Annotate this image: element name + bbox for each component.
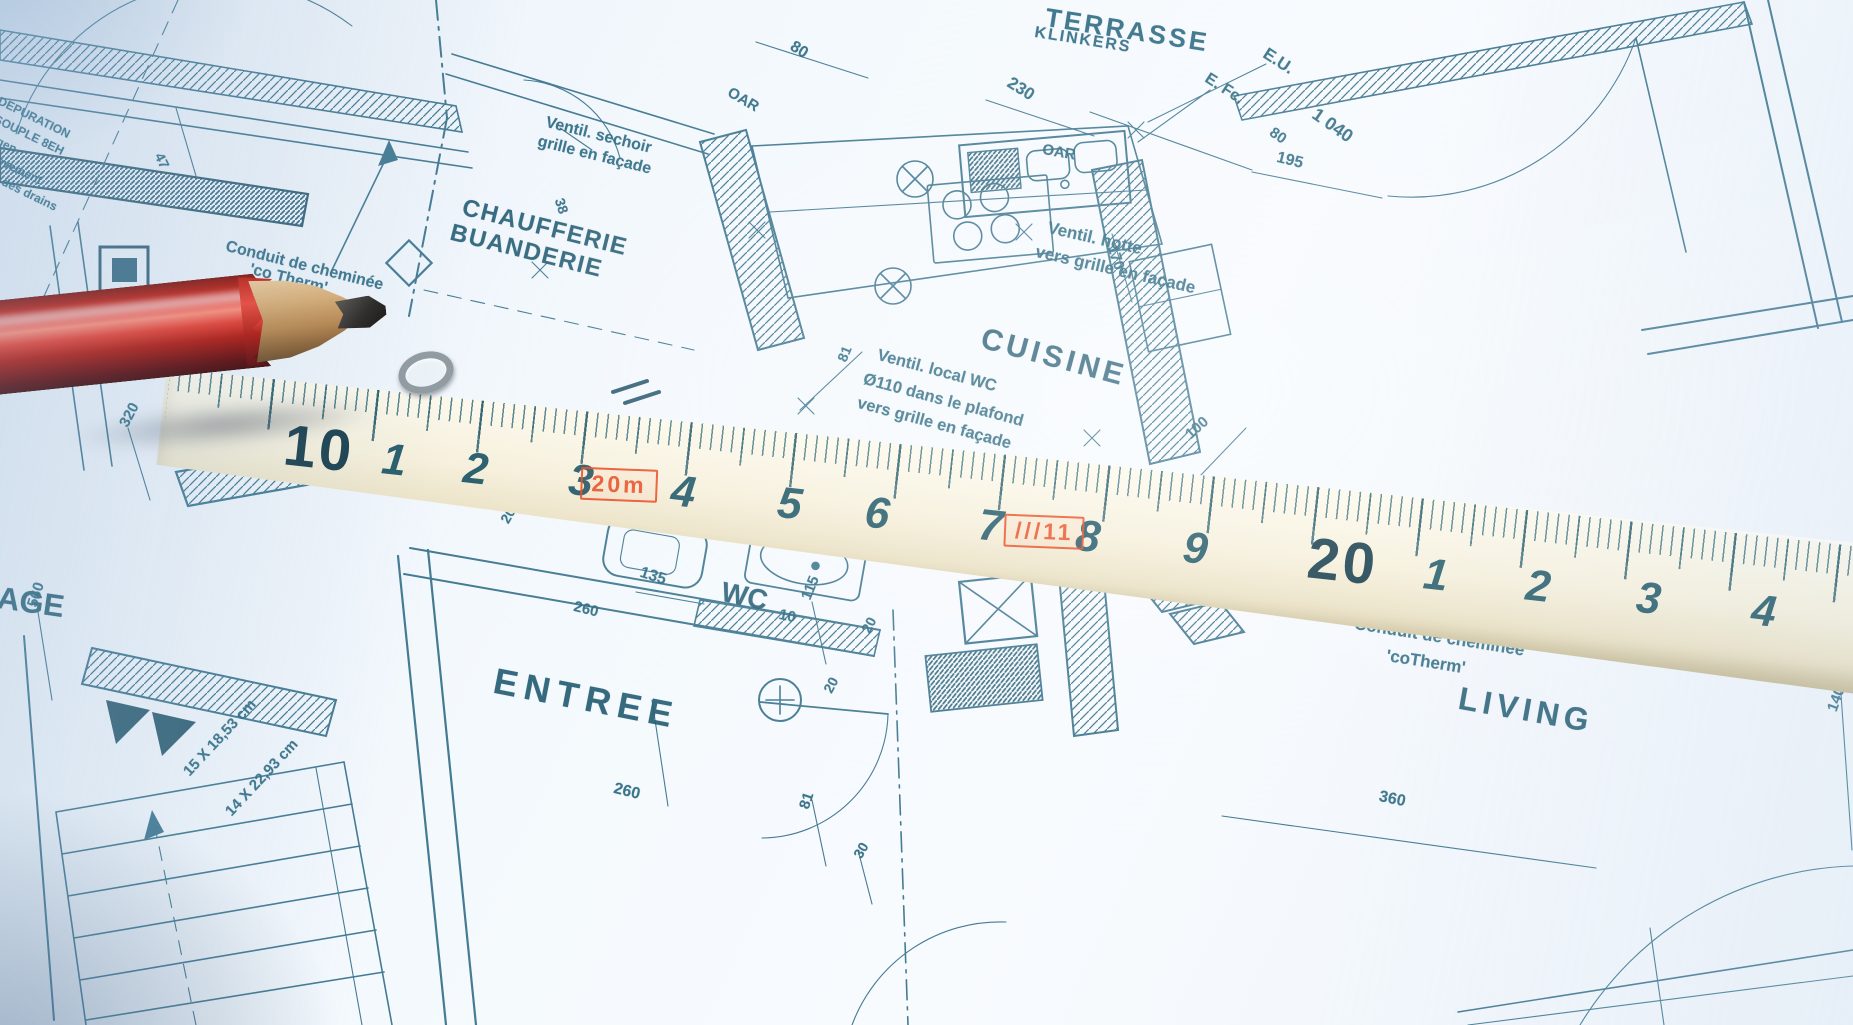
label-dim-260-b: 260 xyxy=(612,780,642,804)
label-dim-20-c: 20 xyxy=(820,674,841,695)
label-oar-2: OAR xyxy=(1041,141,1077,164)
label-efc: E. Fc. xyxy=(1201,70,1247,108)
tape-number-11: 1 xyxy=(1421,549,1451,601)
tape-number-14: 4 xyxy=(1749,585,1779,637)
label-wc: WC xyxy=(718,576,770,617)
label-dim-1040: 1 040 xyxy=(1308,104,1357,147)
blueprint-photo: TERRASSEKLINKERS80OAR230E.U.E. Fc.1 0408… xyxy=(0,0,1853,1025)
label-dim-360: 360 xyxy=(1377,788,1407,811)
label-living: LIVING xyxy=(1456,680,1597,740)
label-dim-30: 30 xyxy=(850,840,872,861)
tape-number-9: 9 xyxy=(1180,523,1210,575)
label-dim-81-b: 81 xyxy=(796,790,817,811)
tape-number-7: 7 xyxy=(976,500,1006,552)
label-conduit-right-2: 'coTherm' xyxy=(1385,646,1467,678)
tape-number-12: 2 xyxy=(1523,561,1553,613)
label-dim-80-top: 80 xyxy=(786,38,811,63)
label-dim-81-mid: 81 xyxy=(834,344,855,364)
label-dim-195: 195 xyxy=(1275,149,1305,173)
label-dim-47: 47 xyxy=(152,150,173,171)
label-entree: ENTREE xyxy=(490,660,683,737)
stamp-20m: 20m xyxy=(580,467,658,503)
tape-number-10: 20 xyxy=(1304,524,1381,598)
tape-number-6: 6 xyxy=(862,488,892,540)
stamp-111: ///11 xyxy=(1003,514,1085,551)
tape-number-1: 1 xyxy=(379,434,409,486)
label-cuisine: CUISINE xyxy=(977,322,1130,394)
label-dim-115: 115 xyxy=(798,574,823,603)
label-eu: E.U. xyxy=(1259,44,1298,79)
tape-number-5: 5 xyxy=(775,478,805,530)
label-dim-230: 230 xyxy=(1003,73,1038,105)
label-oar-1: OAR xyxy=(725,84,762,115)
label-dim-38: 38 xyxy=(552,196,572,216)
label-dim-20-b: 20 xyxy=(858,614,879,635)
label-frag-gen: gen xyxy=(0,134,19,156)
label-stair-dim-2: 14 X 22,93 cm xyxy=(222,736,302,820)
label-dim-80-right: 80 xyxy=(1266,124,1289,147)
tape-number-2: 2 xyxy=(461,443,491,495)
tape-number-4: 4 xyxy=(668,466,698,518)
label-dim-260-a: 260 xyxy=(572,598,600,621)
label-dim-135: 135 xyxy=(637,564,668,589)
label-dim-100: 100 xyxy=(1182,413,1212,442)
label-stair-dim-1: 15 X 18,53 cm xyxy=(180,696,260,780)
label-wc-10: 10 xyxy=(777,606,797,626)
tape-number-13: 3 xyxy=(1634,573,1664,625)
